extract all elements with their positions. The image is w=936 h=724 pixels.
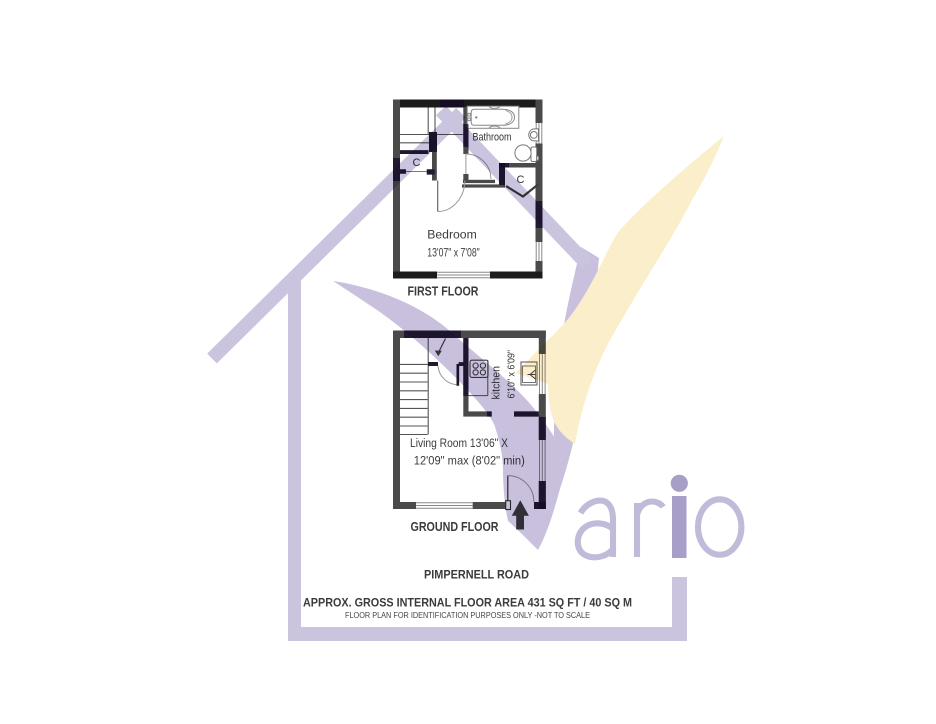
svg-text:Living Room 13'06" X: Living Room 13'06" X xyxy=(410,436,508,450)
svg-text:FIRST FLOOR: FIRST FLOOR xyxy=(408,285,479,299)
svg-text:FLOOR PLAN FOR IDENTIFICATION: FLOOR PLAN FOR IDENTIFICATION PURPOSES O… xyxy=(345,611,590,620)
svg-text:PIMPERNELL ROAD: PIMPERNELL ROAD xyxy=(424,568,529,582)
svg-text:GROUND FLOOR: GROUND FLOOR xyxy=(411,520,499,534)
svg-text:APPROX. GROSS INTERNAL FLOOR A: APPROX. GROSS INTERNAL FLOOR AREA 431 SQ… xyxy=(303,598,632,610)
svg-text:Bedroom: Bedroom xyxy=(427,228,477,242)
svg-text:13'07" x 7'08": 13'07" x 7'08" xyxy=(427,246,480,260)
